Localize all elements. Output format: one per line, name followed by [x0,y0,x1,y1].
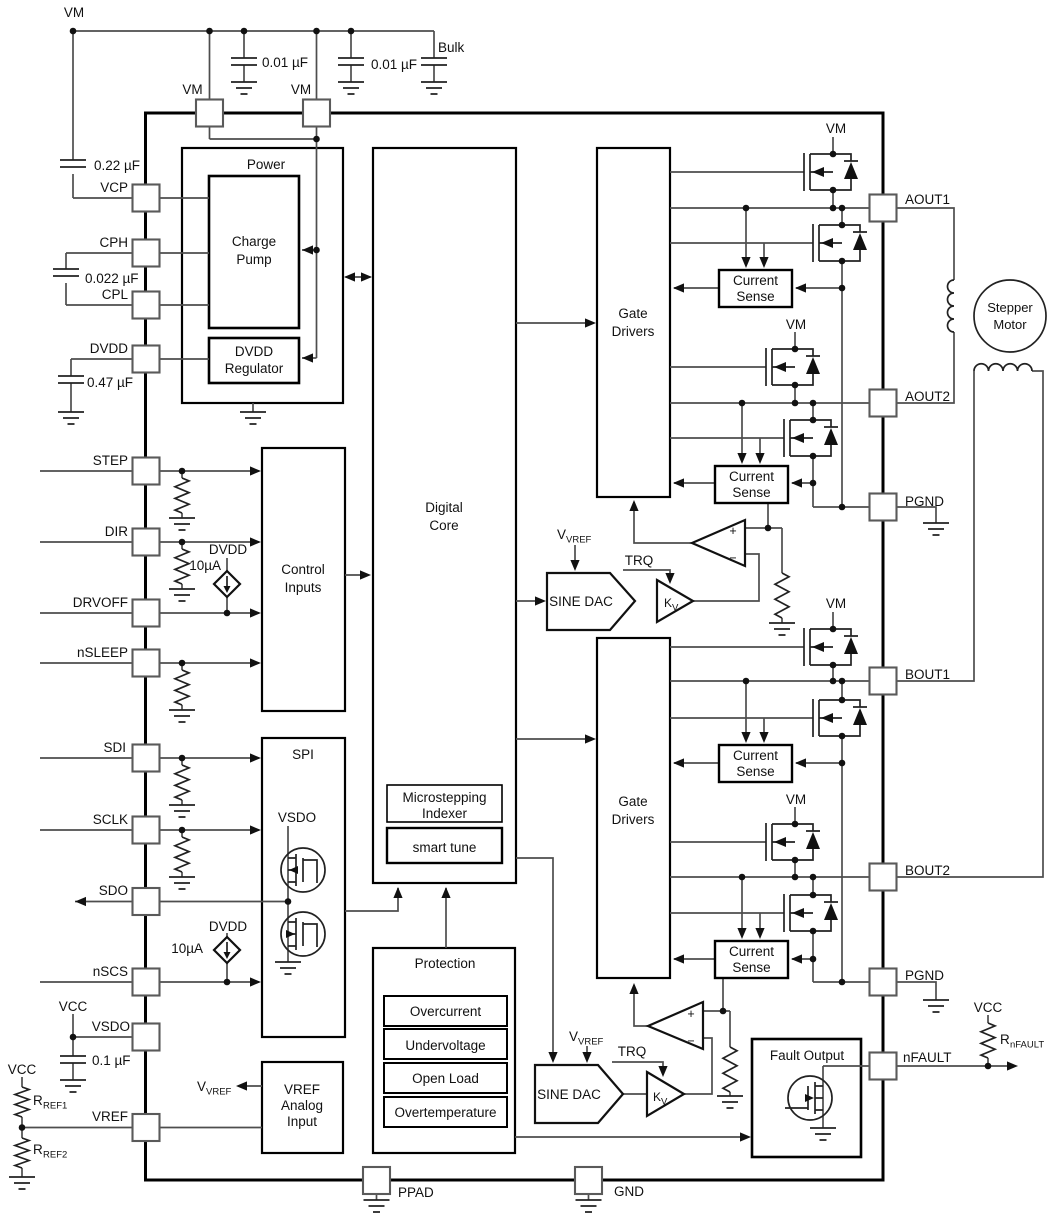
wire [897,982,937,1000]
label-blocks-gate_drivers-0: Gate [618,794,647,809]
label-pins-left-6: DRVOFF [73,595,128,610]
label-pins-left-4: STEP [93,453,128,468]
wire [897,507,937,523]
junction-dot [285,898,292,905]
rnfault-resistor [981,1023,995,1058]
label-blocks-indexer-0: Microstepping [402,790,486,805]
junction-dot [810,417,817,424]
wire [897,371,975,681]
junction-dot [206,28,213,35]
pin-pgnd-b [870,969,897,996]
label-blocks-control_inputs-1: Inputs [285,580,322,595]
ground-symbol [231,82,257,94]
ground-symbol [364,1200,390,1212]
pin-cpl [133,292,160,319]
label-sub_labels-vvref-main: V [557,527,566,542]
label-labels-trq: TRQ [625,553,654,568]
label-labels-i_src: 10µA [171,941,203,956]
arrowhead [75,897,86,906]
stepper-motor-circle [974,280,1046,352]
label-sub_labels-vvref-sub: VREF [578,1037,604,1048]
junction-dot [810,892,817,899]
label-caps-c_vcp: 0.22 µF [94,158,140,173]
label-sub_labels-kv-sub: V [661,1097,668,1108]
label-blocks-vref_analog-2: Input [287,1114,317,1129]
ground-symbol [923,523,949,535]
label-pins-right-1: AOUT2 [905,389,950,404]
label-blocks-protection_items-1: Undervoltage [405,1038,485,1053]
pin-nscs [133,969,160,996]
label-blocks-gate_drivers-1: Drivers [612,324,655,339]
junction-dot [839,504,846,511]
junction-dot [348,28,355,35]
label-labels-vcc: VCC [59,999,88,1014]
wire [897,371,1044,877]
label-caps-c_dvdd: 0.47 µF [87,375,133,390]
label-pins-right-0: AOUT1 [905,192,950,207]
junction-dot [70,1034,77,1041]
label-blocks-gate_drivers-0: Gate [618,306,647,321]
junction-dot [313,136,320,143]
label-labels-minus: − [687,1034,694,1048]
label-labels-bulk: Bulk [438,40,465,55]
junction-dot [810,956,817,963]
label-pins-left-12: VSDO [92,1019,130,1034]
label-blocks-power: Power [247,157,286,172]
label-blocks-stepper_motor-1: Motor [993,317,1027,332]
junction-dot [839,285,846,292]
label-sub_labels-rnfault-main: R [1000,1032,1010,1047]
label-labels-dvdd: DVDD [209,919,248,934]
label-blocks-vref_analog-0: VREF [284,1082,320,1097]
page: VMVMVMBulk0.01 µF0.01 µF0.22 µF0.022 µF0… [0,0,1047,1221]
junction-dot [179,755,186,762]
junction-dot [792,400,799,407]
label-blocks-protection_items-3: Overtemperature [394,1105,496,1120]
pin-vm-2 [303,100,330,127]
pin-sdo [133,888,160,915]
label-pins-left-5: DIR [105,524,129,539]
label-blocks-charge_pump-0: Charge [232,234,276,249]
junction-dot [792,821,799,828]
junction-dot [739,400,746,407]
junction-dot [792,857,799,864]
capacitor-symbol [60,1056,86,1063]
junction-dot [839,760,846,767]
capacitor-symbol [421,58,447,65]
pin-drvoff [133,600,160,627]
label-blocks-fault_output: Fault Output [770,1048,845,1063]
label-labels-vm: VM [64,5,84,20]
label-pins-right-3: BOUT1 [905,667,950,682]
motor-winding-a-coil [948,280,954,332]
pin-pgnd-a [870,494,897,521]
pin-vm-1 [196,100,223,127]
ground-symbol [9,1177,35,1189]
junction-dot [985,1063,992,1070]
label-pins-left-7: nSLEEP [77,645,128,660]
label-blocks-sine_dac: SINE DAC [549,594,613,609]
label-blocks-current_sense-1: Sense [736,289,774,304]
pin-sdi [133,745,160,772]
ground-symbol [58,412,84,424]
junction-dot [224,610,231,617]
gate-drivers-a-block [597,148,670,497]
capacitor-symbol [231,58,257,65]
label-pins-left-3: DVDD [90,341,129,356]
label-sub_labels-rref2-main: R [33,1142,43,1157]
label-blocks-gate_drivers-1: Drivers [612,812,655,827]
label-pins-left-9: SCLK [93,812,128,827]
label-labels-plus: + [729,524,736,538]
pin-bout2 [870,864,897,891]
label-labels-minus: − [729,551,736,565]
label-labels-vm: VM [826,596,846,611]
pin-dvdd [133,346,160,373]
junction-dot [810,928,817,935]
rref1-resistor [15,1087,29,1117]
pin-cph [133,240,160,267]
label-blocks-charge_pump-1: Pump [236,252,271,267]
junction-dot [830,678,837,685]
label-pins-left-1: CPH [99,235,128,250]
pin-nsleep [133,650,160,677]
junction-dot [810,400,817,407]
label-blocks-digital_core-0: Digital [425,500,463,515]
junction-dot [810,480,817,487]
label-caps-c2: 0.01 µF [371,57,417,72]
junction-dot [830,205,837,212]
pin-aout2 [870,390,897,417]
label-pins-right-6: nFAULT [903,1050,952,1065]
junction-dot [313,247,320,254]
label-blocks-control_inputs-0: Control [281,562,325,577]
label-blocks-stepper_motor-0: Stepper [987,300,1033,315]
stepper-driver-block-diagram: VMVMVMBulk0.01 µF0.01 µF0.22 µF0.022 µF0… [0,0,1047,1221]
ground-symbol [421,82,447,94]
label-labels-vm: VM [291,82,311,97]
label-blocks-current_sense-0: Current [729,469,774,484]
label-blocks-current_sense-0: Current [733,273,778,288]
label-blocks-dvdd_regulator-0: DVDD [235,344,274,359]
label-pins-left-0: VCP [100,180,128,195]
junction-dot [839,697,846,704]
motor-winding-b-coil [974,364,1032,371]
junction-dot [830,151,837,158]
label-blocks-digital_core-1: Core [429,518,458,533]
label-labels-vcc: VCC [8,1062,37,1077]
junction-dot [810,453,817,460]
junction-dot [179,827,186,834]
junction-dot [839,222,846,229]
label-labels-vm: VM [786,317,806,332]
capacitor-symbol [53,269,79,276]
label-labels-plus: + [687,1007,694,1021]
label-blocks-spi_vsdo: VSDO [278,810,316,825]
label-sub_labels-rnfault-sub: nFAULT [1010,1040,1044,1051]
junction-dot [792,874,799,881]
junction-dot [810,874,817,881]
pin-vref [133,1114,160,1141]
label-sub_labels-vvref-main: V [569,1029,578,1044]
label-pins-bottom-0: PPAD [398,1185,434,1200]
label-pins-right-2: PGND [905,494,944,509]
label-blocks-smart_tune: smart tune [413,840,477,855]
pin-gnd [575,1167,602,1194]
label-blocks-sine_dac: SINE DAC [537,1087,601,1102]
pin-ppad [363,1167,390,1194]
label-pins-left-11: nSCS [93,964,128,979]
junction-dot [224,979,231,986]
label-pins-right-5: PGND [905,968,944,983]
junction-dot [839,733,846,740]
junction-dot [839,258,846,265]
label-labels-vm: VM [826,121,846,136]
label-blocks-current_sense-0: Current [733,748,778,763]
ground-symbol [576,1200,602,1212]
capacitor-symbol [58,376,84,383]
ground-symbol [923,1000,949,1012]
junction-dot [179,468,186,475]
label-sub_labels-kv-main: K [653,1090,661,1104]
label-blocks-current_sense-1: Sense [732,485,770,500]
label-pins-left-13: VREF [92,1109,128,1124]
pin-bout1 [870,668,897,695]
label-sub_labels-vvref-main: V [197,1079,206,1094]
label-blocks-indexer-1: Indexer [422,806,468,821]
label-labels-vcc: VCC [974,1000,1003,1015]
pin-nfault [870,1053,897,1080]
label-sub_labels-rref1-main: R [33,1093,43,1108]
label-sub_labels-rref1-sub: REF1 [43,1101,67,1112]
label-labels-trq: TRQ [618,1044,647,1059]
label-blocks-vref_analog-1: Analog [281,1098,323,1113]
label-labels-dvdd: DVDD [209,542,248,557]
digital-core-block [373,148,516,883]
label-blocks-spi: SPI [292,747,314,762]
label-blocks-current_sense-1: Sense [736,764,774,779]
label-pins-left-10: SDO [99,883,128,898]
wire [897,208,955,280]
spi-block [262,738,345,1037]
label-blocks-current_sense-1: Sense [732,960,770,975]
arrowhead [1007,1061,1018,1070]
ground-symbol [60,1080,86,1092]
label-sub_labels-vvref-sub: VREF [566,535,592,546]
label-sub_labels-kv-main: K [664,596,672,610]
label-blocks-protection_items-0: Overcurrent [410,1004,482,1019]
label-labels-vm: VM [786,792,806,807]
junction-dot [830,187,837,194]
label-caps-c_cp: 0.022 µF [85,271,139,286]
junction-dot [743,678,750,685]
pin-dir [133,529,160,556]
label-sub_labels-rref2-sub: REF2 [43,1150,67,1161]
capacitor-symbol [338,58,364,65]
junction-dot [19,1124,26,1131]
junction-dot [839,205,846,212]
label-sub_labels-vvref-sub: VREF [206,1087,232,1098]
label-pins-left-8: SDI [103,740,126,755]
junction-dot [830,662,837,669]
junction-dot [179,660,186,667]
junction-dot [241,28,248,35]
pin-vsdo [133,1024,160,1051]
ground-symbol [338,82,364,94]
rref2-resistor [15,1138,29,1168]
junction-dot [839,979,846,986]
label-sub_labels-kv-sub: V [672,603,679,614]
junction-dot [839,678,846,685]
pin-vcp [133,185,160,212]
label-pins-right-4: BOUT2 [905,863,950,878]
junction-dot [792,382,799,389]
label-pins-bottom-1: GND [614,1184,644,1199]
junction-dot [70,28,77,35]
pin-step [133,458,160,485]
label-labels-i_src: 10µA [189,558,221,573]
label-blocks-current_sense-0: Current [729,944,774,959]
junction-dot [179,539,186,546]
label-blocks-protection_items-2: Open Load [412,1071,479,1086]
junction-dot [720,1008,727,1015]
junction-dot [313,28,320,35]
junction-dot [830,626,837,633]
label-labels-vm: VM [182,82,202,97]
pin-sclk [133,817,160,844]
label-pins-left-2: CPL [102,287,129,302]
label-caps-c1: 0.01 µF [262,55,308,70]
label-caps-c_vsdo: 0.1 µF [92,1053,131,1068]
capacitor-symbol [60,160,86,167]
junction-dot [739,874,746,881]
pin-aout1 [870,195,897,222]
junction-dot [743,205,750,212]
label-blocks-protection: Protection [415,956,476,971]
junction-dot [792,346,799,353]
junction-dot [765,525,772,532]
label-blocks-dvdd_regulator-1: Regulator [225,361,284,376]
